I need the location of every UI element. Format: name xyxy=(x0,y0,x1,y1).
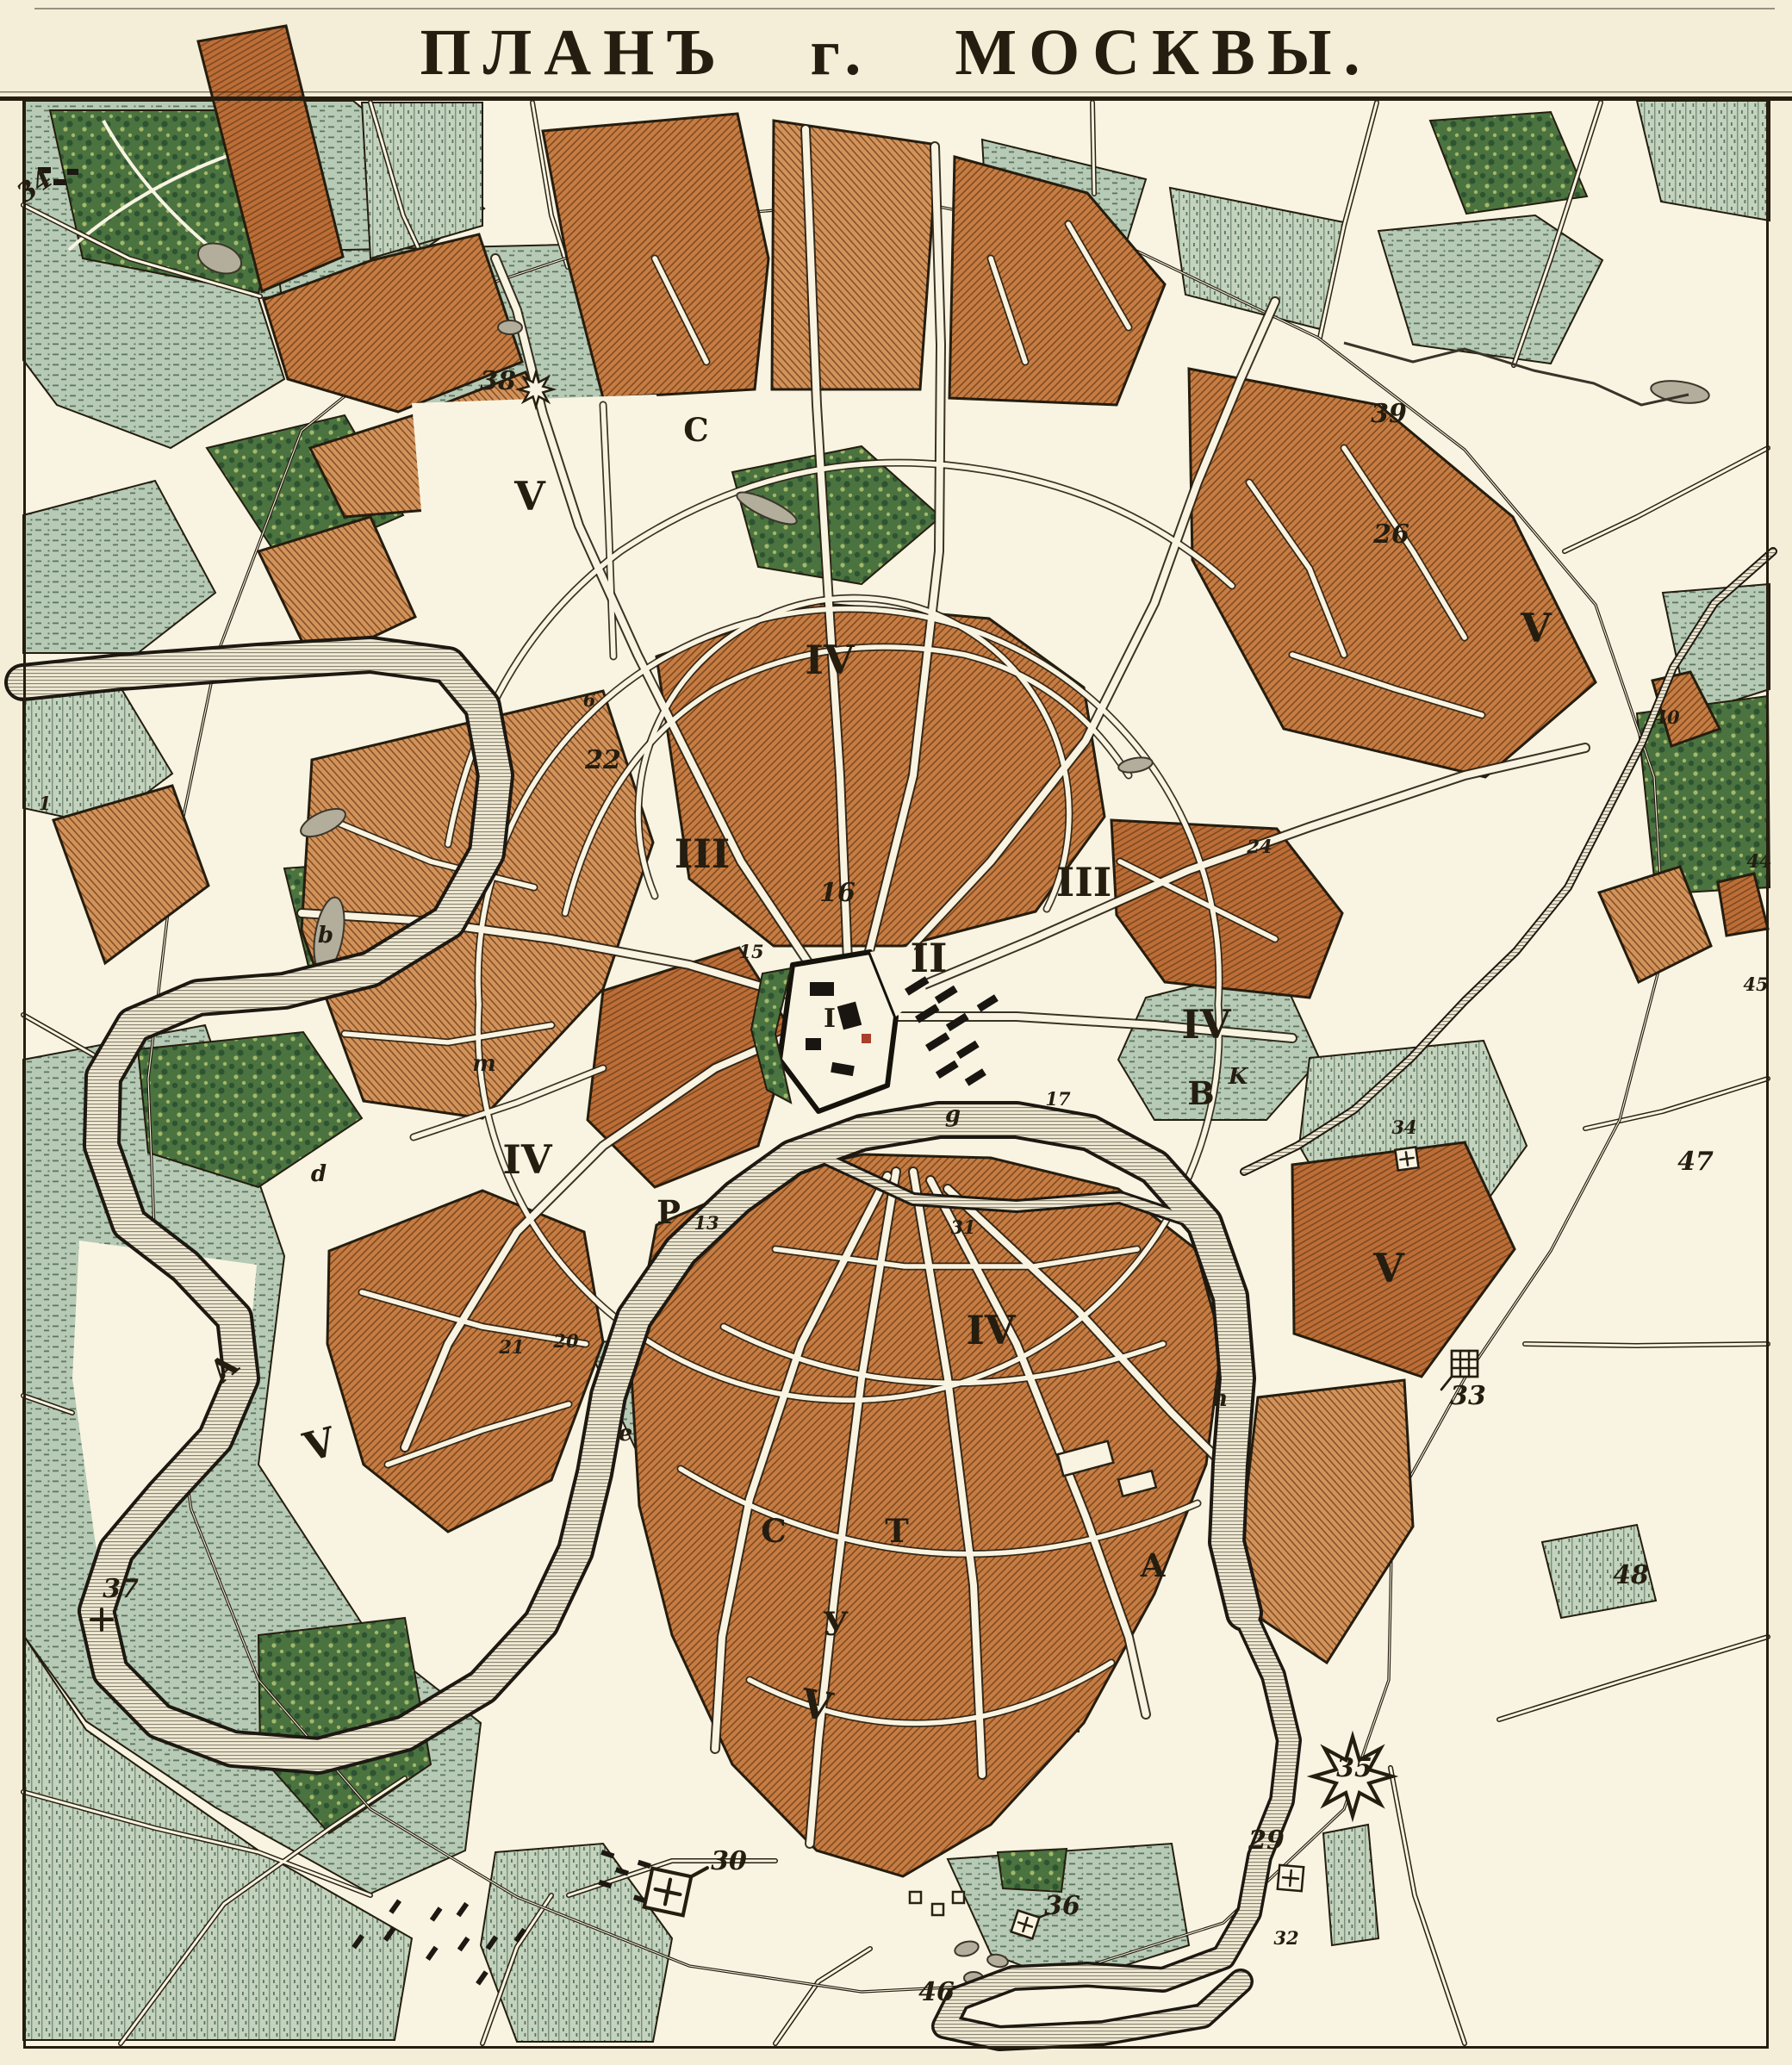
map-label-33: 33 xyxy=(1450,1381,1486,1411)
map-label-K: K xyxy=(1228,1064,1249,1090)
map-label-IV: IV xyxy=(805,637,856,683)
map-label-IV: IV xyxy=(502,1136,553,1183)
map-label-46: 46 xyxy=(918,1977,955,2007)
map-label-V: V xyxy=(1372,1245,1405,1291)
map-label-15: 15 xyxy=(738,941,763,962)
map-label-37: 37 xyxy=(103,1574,139,1604)
map-label-III: III xyxy=(675,830,731,877)
map-label-38: 38 xyxy=(480,366,516,396)
map-label-IV: IV xyxy=(1181,1001,1232,1048)
map-label-31: 31 xyxy=(950,1216,975,1238)
map-page: IIIIIIIIIVIVIVIVVVVVVI343839262261615241… xyxy=(0,0,1792,2065)
map-label-17: 17 xyxy=(1045,1088,1071,1110)
map-label-V: V xyxy=(513,473,546,519)
star-symbol xyxy=(519,372,553,407)
map-label-36: 36 xyxy=(1044,1891,1080,1921)
map-label-35: 35 xyxy=(1336,1753,1372,1783)
map-label-T: T xyxy=(885,1512,909,1550)
crossbox-symbol xyxy=(1278,1865,1304,1891)
map-label-16: 16 xyxy=(819,878,856,908)
map-label-m: m xyxy=(472,1051,496,1077)
map-label-IV: IV xyxy=(966,1307,1017,1353)
map-label-13: 13 xyxy=(694,1212,719,1234)
map-label-20: 20 xyxy=(552,1330,579,1352)
map-label-d: d xyxy=(311,1161,327,1187)
map-label-21: 21 xyxy=(498,1336,524,1358)
map-label-У: У xyxy=(823,1605,849,1643)
map-label-32: 32 xyxy=(1273,1927,1298,1949)
map-label-e: e xyxy=(619,1421,633,1446)
map-label-30: 30 xyxy=(711,1846,747,1876)
map-label-6: 6 xyxy=(583,689,596,711)
map-label-II: II xyxy=(910,935,947,981)
map-label-40: 40 xyxy=(1654,706,1680,728)
crossbox-symbol xyxy=(1395,1147,1418,1170)
map-label-39: 39 xyxy=(1371,399,1407,429)
top-rule xyxy=(34,8,1775,9)
map-label-34: 34 xyxy=(1391,1116,1416,1138)
map-label-V: V xyxy=(1520,605,1552,651)
map-label-1: 1 xyxy=(39,793,52,814)
map-label-h: h xyxy=(1212,1386,1229,1412)
map-label-22: 22 xyxy=(584,745,621,775)
map-label-A: A xyxy=(1140,1546,1167,1584)
map-label-C: C xyxy=(683,411,708,449)
map-label-47: 47 xyxy=(1677,1147,1714,1177)
map-label-I: I xyxy=(824,1004,836,1034)
map-label-b: b xyxy=(318,923,333,949)
map-label-B: B xyxy=(1187,1074,1214,1112)
map-label-26: 26 xyxy=(1372,519,1409,550)
map-label-g: g xyxy=(945,1102,961,1128)
map-label-29: 29 xyxy=(1248,1826,1285,1856)
map-label-24: 24 xyxy=(1246,836,1272,857)
map-label-45: 45 xyxy=(1743,973,1768,995)
map-label-P: P xyxy=(656,1193,681,1231)
map-label-III: III xyxy=(1056,859,1112,905)
map-label-48: 48 xyxy=(1613,1560,1649,1590)
map-title: ПЛАНЪ г. МОСКВЫ. xyxy=(420,16,1372,89)
moscow-plan-map: IIIIIIIIIVIVIVIVVVVVVI343839262261615241… xyxy=(0,0,1792,2065)
map-label-C: C xyxy=(761,1512,786,1550)
